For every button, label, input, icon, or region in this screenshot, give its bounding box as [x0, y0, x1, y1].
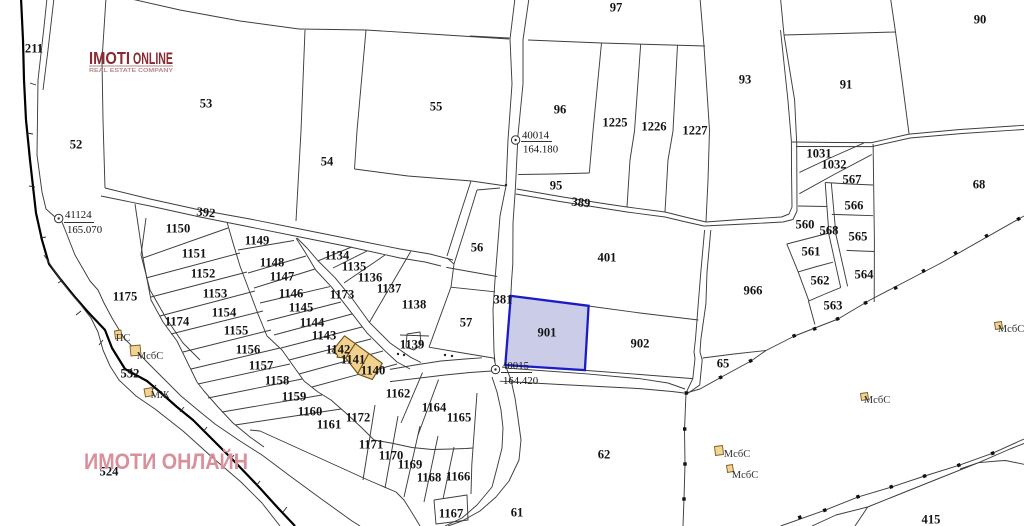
svg-text:52: 52: [70, 138, 83, 152]
svg-text:ИМОТИ ОНЛАЙН: ИМОТИ ОНЛАЙН: [84, 449, 248, 474]
svg-text:1144: 1144: [300, 316, 325, 330]
svg-text:1152: 1152: [191, 267, 216, 281]
svg-text:40015: 40015: [502, 360, 529, 372]
svg-text:1226: 1226: [641, 120, 666, 134]
svg-text:211: 211: [25, 42, 43, 56]
svg-text:1140: 1140: [361, 364, 386, 378]
svg-text:562: 562: [811, 274, 830, 288]
svg-text:1173: 1173: [330, 288, 355, 302]
svg-text:МсбС: МсбС: [137, 351, 163, 362]
svg-text:55: 55: [430, 100, 443, 114]
svg-text:1149: 1149: [245, 234, 270, 248]
svg-text:1172: 1172: [346, 411, 371, 425]
svg-text:93: 93: [739, 73, 752, 87]
svg-text:566: 566: [845, 199, 864, 213]
svg-text:IMOTI: IMOTI: [89, 48, 130, 68]
svg-text:1174: 1174: [165, 315, 190, 329]
svg-text:91: 91: [840, 78, 853, 92]
svg-text:1154: 1154: [212, 306, 237, 320]
svg-text:МсбС: МсбС: [724, 449, 750, 460]
svg-text:96: 96: [554, 103, 567, 117]
svg-text:1166: 1166: [446, 470, 471, 484]
svg-text:1162: 1162: [386, 387, 411, 401]
svg-text:1158: 1158: [265, 374, 290, 388]
svg-text:ПС: ПС: [116, 333, 131, 344]
svg-text:567: 567: [843, 173, 862, 187]
svg-text:90: 90: [974, 13, 987, 27]
svg-text:54: 54: [321, 155, 334, 169]
svg-text:1168: 1168: [417, 471, 442, 485]
svg-text:1159: 1159: [282, 390, 307, 404]
svg-text:164.420: 164.420: [503, 375, 538, 387]
svg-text:564: 564: [855, 268, 875, 282]
svg-text:1160: 1160: [298, 405, 323, 419]
svg-text:1156: 1156: [236, 343, 261, 357]
svg-text:560: 560: [796, 218, 815, 232]
svg-text:1139: 1139: [400, 338, 425, 352]
svg-text:532: 532: [121, 367, 140, 381]
svg-text:392: 392: [196, 205, 216, 221]
svg-text:1157: 1157: [249, 359, 274, 373]
svg-text:95: 95: [550, 179, 563, 193]
svg-text:МсбС: МсбС: [864, 395, 890, 406]
svg-text:389: 389: [571, 195, 591, 211]
svg-text:62: 62: [598, 448, 611, 462]
svg-text:1143: 1143: [312, 329, 337, 343]
svg-text:966: 966: [744, 284, 763, 298]
svg-text:401: 401: [598, 251, 617, 265]
svg-text:1032: 1032: [821, 158, 846, 172]
svg-text:1164: 1164: [422, 401, 447, 415]
svg-text:415: 415: [922, 513, 941, 526]
svg-text:164.180: 164.180: [523, 144, 558, 156]
svg-text:1153: 1153: [203, 287, 228, 301]
svg-text:1150: 1150: [166, 222, 191, 236]
svg-text:902: 902: [631, 337, 650, 351]
svg-text:1165: 1165: [447, 411, 472, 425]
svg-text:561: 561: [802, 245, 821, 259]
svg-text:53: 53: [200, 97, 213, 111]
svg-text:ONLINE: ONLINE: [133, 50, 173, 68]
svg-text:1147: 1147: [270, 270, 295, 284]
svg-text:МсбС: МсбС: [998, 324, 1024, 335]
svg-text:61: 61: [511, 506, 524, 520]
svg-text:97: 97: [610, 1, 623, 15]
svg-text:563: 563: [824, 299, 843, 313]
svg-text:1225: 1225: [602, 116, 627, 130]
svg-text:40014: 40014: [522, 130, 550, 142]
svg-text:1146: 1146: [279, 287, 304, 301]
svg-text:565: 565: [849, 230, 868, 244]
svg-text:568: 568: [820, 224, 839, 238]
svg-text:1169: 1169: [398, 458, 423, 472]
svg-text:65: 65: [717, 357, 730, 371]
svg-text:1155: 1155: [224, 324, 249, 338]
svg-text:1148: 1148: [260, 256, 285, 270]
svg-text:1167: 1167: [439, 507, 464, 521]
svg-text:1227: 1227: [682, 124, 707, 138]
svg-text:1175: 1175: [113, 290, 138, 304]
svg-text:165.070: 165.070: [67, 224, 102, 236]
svg-text:МЖ: МЖ: [151, 390, 170, 401]
svg-text:1151: 1151: [182, 247, 207, 261]
svg-text:381: 381: [494, 293, 513, 307]
svg-text:1138: 1138: [402, 298, 427, 312]
svg-text:56: 56: [471, 241, 484, 255]
svg-text:68: 68: [973, 178, 986, 192]
svg-text:1161: 1161: [317, 418, 342, 432]
svg-text:1137: 1137: [377, 282, 402, 296]
svg-text:1145: 1145: [289, 301, 314, 315]
svg-text:REAL ESTATE COMPANY: REAL ESTATE COMPANY: [89, 68, 173, 74]
svg-text:41124: 41124: [65, 209, 92, 221]
svg-text:901: 901: [538, 326, 557, 340]
svg-text:57: 57: [460, 316, 473, 330]
svg-text:МсбС: МсбС: [732, 470, 758, 481]
